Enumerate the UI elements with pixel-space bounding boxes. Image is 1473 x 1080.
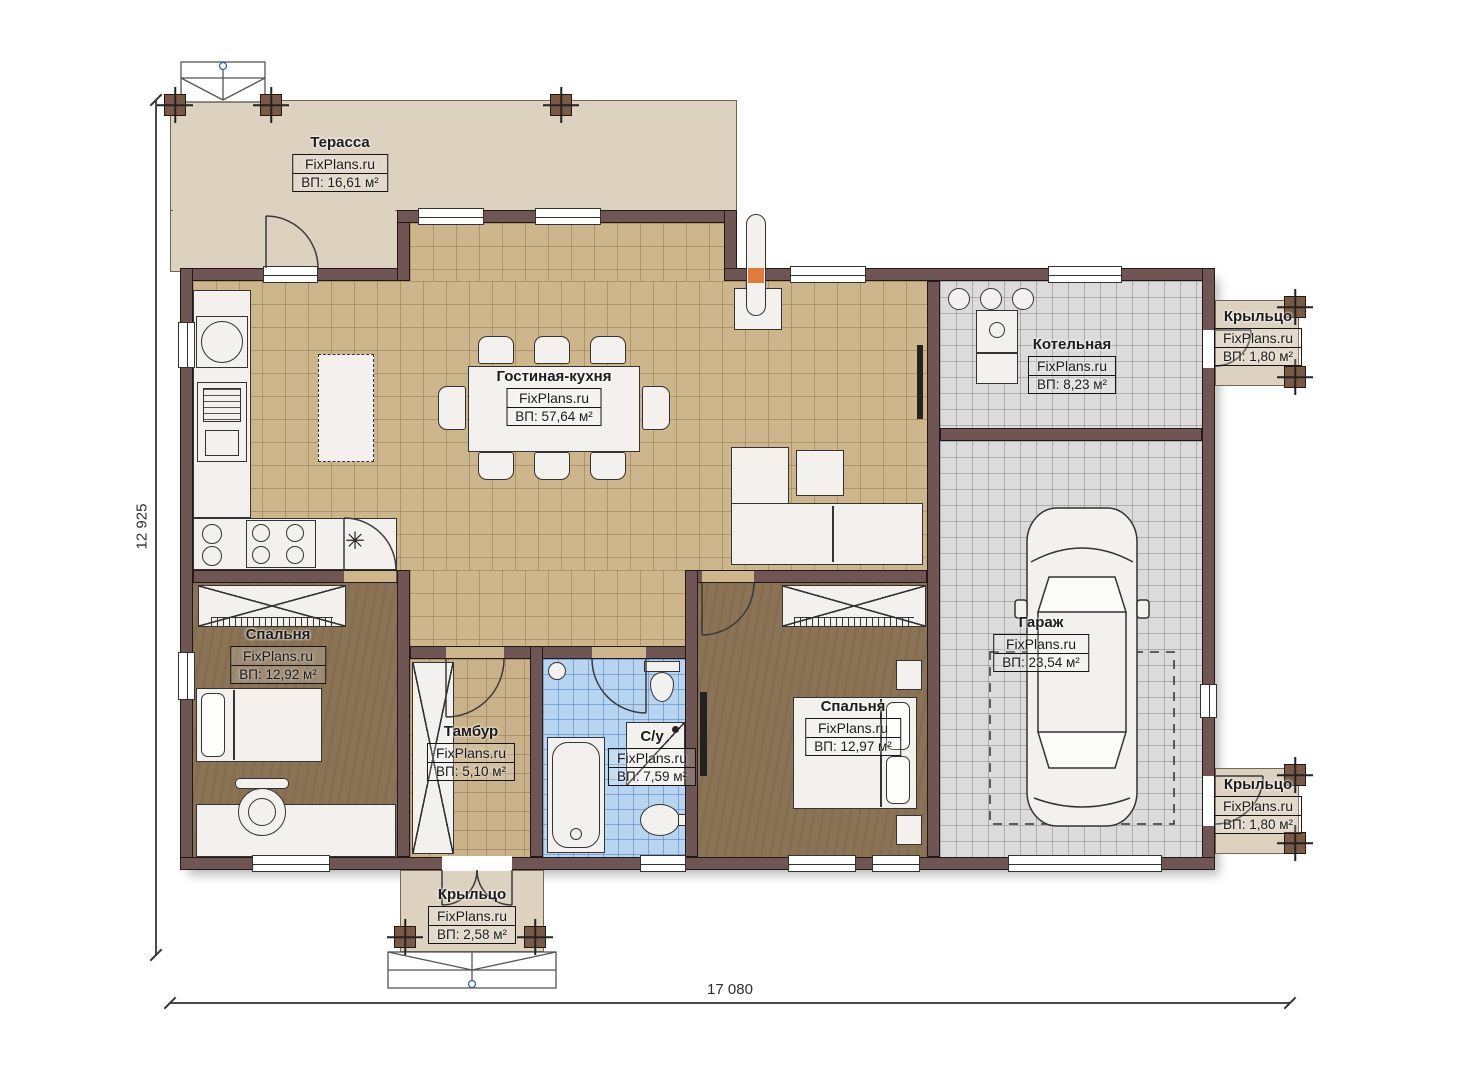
toilet-tank [644,661,680,672]
window-garage-right [1200,684,1217,718]
floor-living-corridor [410,570,685,646]
burner-4 [286,546,304,564]
coffee-table [796,450,844,496]
bath-sink [640,804,680,836]
room-area: ВП: 1,80 м² [1215,347,1301,365]
burner-3 [286,524,304,542]
terrace-column [164,94,186,116]
watermark: FixPlans.ru [1029,357,1115,375]
door-bedroom-left-gap [344,571,396,582]
label-garage: Гараж FixPlans.ru ВП: 23,54 м² [993,614,1089,672]
label-boiler: Котельная FixPlans.ru ВП: 8,23 м² [1028,336,1116,394]
room-name: Терасса [292,134,388,151]
hob-icon: ✳ [345,530,365,554]
dining-chair [478,452,514,480]
dining-chair [478,336,514,364]
room-name: Спальня [230,626,326,643]
watermark: FixPlans.ru [293,155,387,173]
door-boiler-porch-opening [1203,330,1214,368]
room-area: ВП: 8,23 м² [1029,375,1115,393]
watermark: FixPlans.ru [1215,329,1301,347]
door-garage-porch-opening [1203,776,1214,826]
dining-chair [590,452,626,480]
wall-bedroom-right-left [685,570,698,857]
room-name: Крыльцо [1214,308,1302,325]
window-living-top-2 [535,208,601,225]
tv-living [917,345,923,419]
wardrobe-rail [211,617,334,626]
desk [196,804,396,857]
bathtub-inner [552,742,600,848]
dining-chair [590,336,626,364]
boiler-divider [977,352,1017,354]
window-bedroom-right-bottom-1 [788,855,856,872]
door-bedroom-right-gap [702,571,754,582]
kitchen-island [318,354,374,462]
dimension-label-horizontal: 17 080 [700,981,760,998]
room-name: Крыльцо [428,886,516,903]
fridge-vents [203,388,241,422]
window-living-top-1 [418,208,484,225]
wardrobe-left [198,585,346,627]
terrace-column [550,94,572,116]
room-name: Тамбур [427,723,515,740]
dining-chair [438,386,466,430]
room-name: С/у [608,728,696,745]
room-area: ВП: 2,58 м² [429,925,515,943]
door-vestibule-gap [446,647,504,658]
label-bedroom-left: Спальня FixPlans.ru ВП: 12,92 м² [230,626,326,684]
window-living-top-3 [790,266,866,283]
room-area: ВП: 12,92 м² [231,665,325,683]
door-terrace-threshold [263,266,318,283]
room-terrace [170,100,737,212]
dining-chair [642,386,670,430]
label-vestibule: Тамбур FixPlans.ru ВП: 5,10 м² [427,723,515,781]
label-porch-top-right: Крыльцо FixPlans.ru ВП: 1,80 м² [1214,308,1302,366]
room-area: ВП: 57,64 м² [507,407,601,425]
watermark: FixPlans.ru [429,907,515,925]
wall-vest-bath-div [530,646,543,857]
double-sink-2 [202,546,222,566]
room-name: Крыльцо [1214,776,1302,793]
label-bathroom: С/у FixPlans.ru ВП: 7,59 м² [608,728,696,786]
dimension-line-horizontal [170,1002,1290,1004]
dining-chair [534,452,570,480]
room-terrace-lower [170,210,398,272]
room-area: ВП: 23,54 м² [994,653,1088,671]
window-kitchen-left [178,322,195,368]
watermark: FixPlans.ru [1215,797,1301,815]
burner-1 [252,524,270,542]
watermark: FixPlans.ru [231,647,325,665]
terrace-steps [181,62,265,102]
wardrobe-rail [794,617,913,626]
terrace-column [260,94,282,116]
watermark: FixPlans.ru [428,744,514,762]
boiler-equip-2 [980,288,1002,310]
dimension-label-vertical: 12 925 [134,497,151,557]
kitchen-sink-icon [201,321,243,363]
pillow [886,756,910,804]
room-name: Гараж [993,614,1089,631]
dimension-line-vertical [155,100,157,955]
terrace-seam [173,206,395,214]
watermark: FixPlans.ru [609,749,695,767]
porch-bottom-column [524,926,546,948]
porch-bottom-column [394,926,416,948]
boiler-gauge [989,322,1005,338]
door-front-opening [442,856,512,871]
porch-bottom-steps [388,952,556,988]
tv-bedroom [700,692,707,776]
bed-blanket-line [233,690,235,760]
room-name: Гостиная-кухня [497,368,612,385]
room-area: ВП: 16,61 м² [293,173,387,191]
label-porch-bottom-right: Крыльцо FixPlans.ru ВП: 1,80 м² [1214,776,1302,834]
window-bedroom-left [178,652,195,700]
label-bedroom-right: Спальня FixPlans.ru ВП: 12,97 м² [805,698,901,756]
watermark: FixPlans.ru [994,635,1088,653]
room-area: ВП: 7,59 м² [609,767,695,785]
double-sink-1 [202,524,222,544]
window-bedroom-right-bottom-2 [872,855,920,872]
floor-living-bump [410,223,724,281]
flue-pipe [746,214,766,316]
label-porch-bottom: Крыльцо FixPlans.ru ВП: 2,58 м² [428,886,516,944]
boiler-equip-1 [948,288,970,310]
window-boiler-top [1048,266,1122,283]
boiler-equip-3 [1012,288,1034,310]
desk-chair-seat [248,798,276,826]
wall-mid-vertical [927,281,940,857]
pillow [201,693,225,757]
fridge-inner [205,430,239,456]
garage-gate [1008,855,1162,872]
wall-boiler-garage [940,428,1202,441]
watermark: FixPlans.ru [507,389,601,407]
washer-valve [548,662,566,680]
label-terrace: Терасса FixPlans.ru ВП: 16,61 м² [292,134,388,192]
room-area: ВП: 5,10 м² [428,762,514,780]
room-area: ВП: 12,97 м² [806,737,900,755]
porch-tr-column [1284,366,1306,388]
watermark: FixPlans.ru [806,719,900,737]
sofa-cushion-line [832,506,834,562]
window-bathroom-bottom [640,855,686,872]
room-area: ВП: 1,80 м² [1215,815,1301,833]
dining-chair [534,336,570,364]
wall-bedroom-left-right [397,570,410,857]
nightstand-top [896,660,922,690]
wardrobe-right [782,585,926,627]
nightstand-bottom [896,815,922,845]
room-name: Котельная [1028,336,1116,353]
window-bedroom-left-bottom [252,855,330,872]
sofa-seat [731,503,923,565]
flue-wall-pass [748,268,764,283]
floor-plan-canvas: ✳ [0,0,1473,1080]
door-bathroom-gap [592,647,646,658]
label-living-kitchen: Гостиная-кухня FixPlans.ru ВП: 57,64 м² [497,368,612,426]
room-name: Спальня [805,698,901,715]
porch-br-column [1284,832,1306,854]
burner-2 [252,546,270,564]
